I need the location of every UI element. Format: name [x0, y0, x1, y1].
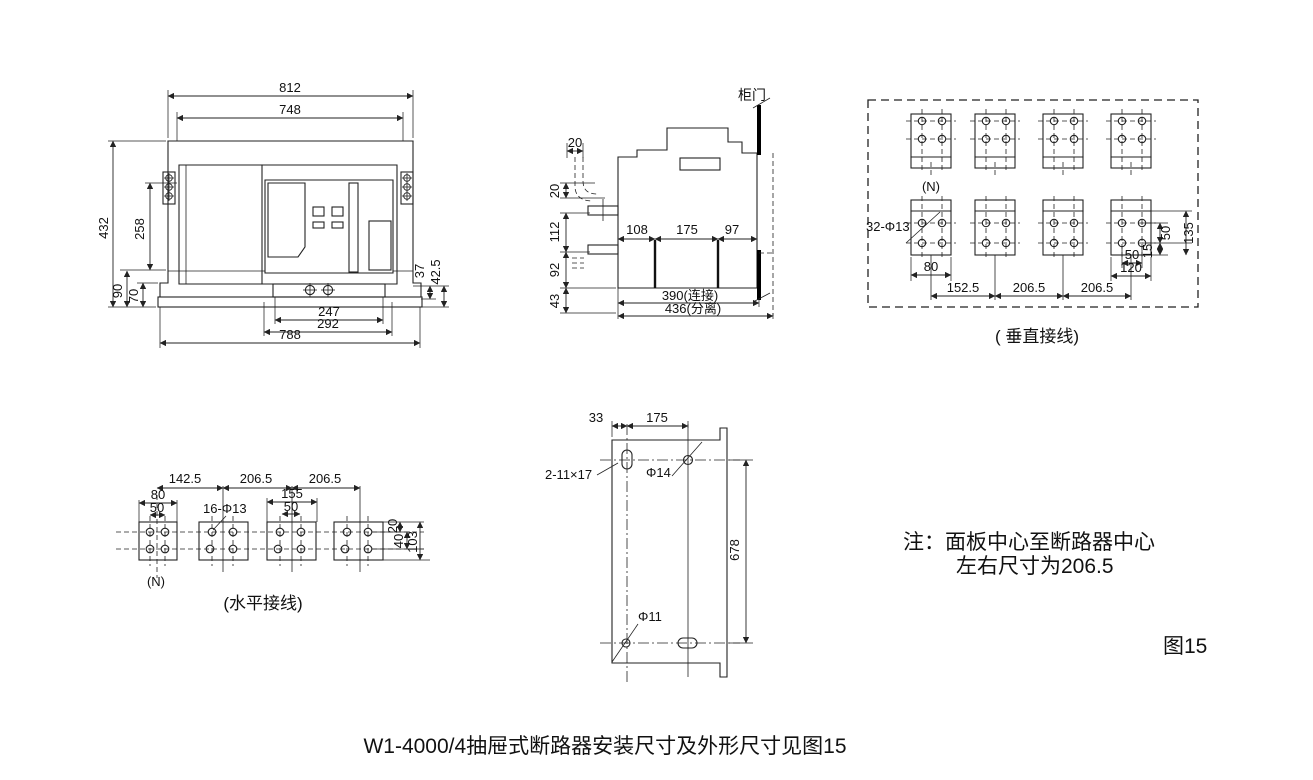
- technical-drawing-figure15: 812 748 432 258 90 70 37 42.5 247 292 78…: [0, 0, 1313, 780]
- horizontal-view-caption: (水平接线): [223, 594, 302, 613]
- vertical-view-caption: ( 垂直接线): [995, 327, 1079, 346]
- dim-33: 33: [589, 410, 603, 425]
- dim-112: 112: [547, 222, 562, 243]
- horizontal-view-dimensions: 142.5 206.5 206.5 80 50 16-Φ13 155 50 20…: [139, 471, 430, 589]
- dim-788: 788: [279, 327, 301, 342]
- mounting-plate-view: 33 175 678 2-11×17 Φ14 Φ11: [545, 410, 753, 684]
- dim-206-5-a: 206.5: [240, 471, 273, 486]
- dim-748: 748: [279, 102, 301, 117]
- dim-50: 50: [150, 500, 164, 515]
- front-view: 812 748 432 258 90 70 37 42.5 247 292 78…: [96, 80, 449, 348]
- front-right-rail: [401, 172, 413, 204]
- dim-97: 97: [725, 222, 739, 237]
- screw-icon: [321, 283, 335, 297]
- dim-432: 432: [96, 217, 111, 239]
- terminal-block: [199, 516, 248, 566]
- dim-20-top: 20: [568, 135, 582, 150]
- front-view-dimensions: 812 748 432 258 90 70 37 42.5 247 292 78…: [96, 80, 449, 348]
- dim-20-left: 20: [547, 184, 562, 198]
- figure-number-label: 图15: [1163, 635, 1207, 658]
- dim-50-b: 50: [284, 499, 298, 514]
- plate-dimensions: 33 175 678 2-11×17 Φ14 Φ11: [545, 410, 753, 643]
- side-view-dimensions: 柜门 20 20 112 92 43 108 175 97 390(连接) 43…: [547, 87, 773, 319]
- note-line-1: 注：面板中心至断路器中心: [903, 531, 1155, 554]
- slot-leader-line: [597, 463, 618, 475]
- note-line-2: 左右尺寸为206.5: [956, 555, 1114, 578]
- dim-142-5: 142.5: [169, 471, 202, 486]
- dim-42-5: 42.5: [428, 259, 443, 284]
- dim-135: 135: [1181, 222, 1196, 244]
- front-left-rail: [163, 172, 175, 204]
- dim-258: 258: [132, 218, 147, 240]
- phi14-label: Φ14: [646, 465, 671, 480]
- dim-292: 292: [317, 316, 339, 331]
- horizontal-connection-view: 142.5 206.5 206.5 80 50 16-Φ13 155 50 20…: [116, 471, 430, 613]
- cabinet-door-label: 柜门: [738, 87, 766, 103]
- dim-108: 108: [626, 222, 648, 237]
- side-view-outline: [572, 98, 773, 316]
- vertical-connection-view: (N) 32-Φ13 80 152.5 206.5 206.5 135 50 1…: [866, 100, 1198, 346]
- dim-43: 43: [547, 294, 562, 308]
- terminal-blocks-top: [906, 109, 1156, 177]
- dim-812: 812: [279, 80, 301, 95]
- vertical-view-dimensions: (N) 32-Φ13 80 152.5 206.5 206.5 135 50 1…: [866, 179, 1196, 296]
- dim-175: 175: [676, 222, 698, 237]
- dim-103: 103: [405, 531, 420, 553]
- dim-50-vertical: 50: [1158, 226, 1173, 240]
- terminal-block: [267, 516, 316, 566]
- neutral-label: (N): [922, 179, 940, 194]
- dim-92: 92: [547, 263, 562, 277]
- dim-175: 175: [646, 410, 668, 425]
- dim-678: 678: [727, 539, 742, 561]
- dim-120: 120: [1120, 260, 1142, 275]
- figure-caption: W1-4000/4抽屉式断路器安装尺寸及外形尺寸见图15: [363, 735, 846, 758]
- dim-80: 80: [924, 259, 938, 274]
- dim-436-separated: 436(分离): [665, 301, 721, 316]
- hole-leader-line: [213, 516, 226, 530]
- terminal-block: [334, 516, 383, 566]
- annotation-note: 注：面板中心至断路器中心 左右尺寸为206.5 图15: [903, 531, 1207, 658]
- hole-spec-label: 16-Φ13: [203, 501, 247, 516]
- screw-icon: [303, 283, 317, 297]
- terminal-block: [139, 516, 177, 566]
- dim-70: 70: [126, 289, 141, 303]
- dim-20: 20: [385, 519, 400, 533]
- dim-15: 15: [1140, 244, 1155, 258]
- dim-90: 90: [110, 284, 125, 298]
- front-view-outline: [158, 141, 422, 307]
- hole-spec-label: 32-Φ13: [866, 219, 910, 234]
- neutral-label: (N): [147, 574, 165, 589]
- side-view: 柜门 20 20 112 92 43 108 175 97 390(连接) 43…: [547, 87, 773, 319]
- dim-206-5-a: 206.5: [1013, 280, 1046, 295]
- slot-spec-label: 2-11×17: [545, 467, 592, 482]
- dim-37: 37: [412, 264, 427, 278]
- dim-152-5: 152.5: [947, 280, 980, 295]
- phi11-label: Φ11: [638, 609, 662, 624]
- dim-40: 40: [391, 534, 406, 548]
- dim-206-5-b: 206.5: [309, 471, 342, 486]
- dim-206-5-b: 206.5: [1081, 280, 1114, 295]
